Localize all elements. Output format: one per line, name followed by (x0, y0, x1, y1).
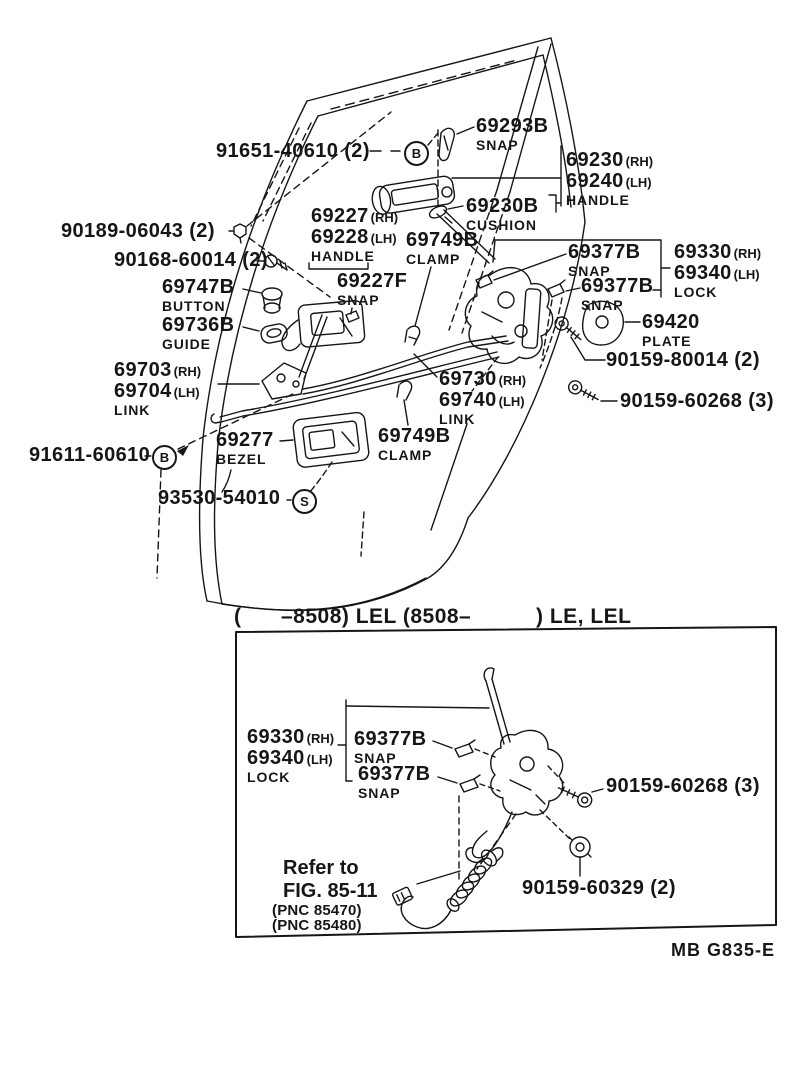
label-69740: 69740(LH)LINK (439, 390, 525, 426)
inset-label-69340: 69340(LH)LOCK (247, 748, 333, 784)
label-69703: 69703(RH) (114, 360, 201, 380)
part-side: (LH) (307, 752, 333, 767)
inset-label-69377b-2: 69377BSNAP (358, 764, 430, 800)
part-caption: SNAP (337, 293, 407, 307)
label-69230b: 69230BCUSHION (466, 196, 538, 232)
inset-label-69377b-1: 69377BSNAP (354, 729, 426, 765)
label-69240: 69240(LH)HANDLE (566, 171, 652, 207)
inset-header-range: –8508) LEL (8508– (281, 606, 471, 627)
part-number: 69340 (247, 747, 305, 769)
part-number: 69230B (466, 195, 538, 217)
inset-label-90159-60329: 90159-60329 (2) (522, 878, 676, 898)
part-side: (RH) (174, 364, 201, 379)
label-69747b: 69747BBUTTON (162, 277, 234, 313)
label-69377b-1: 69377BSNAP (568, 242, 640, 278)
label-90159-80014: 90159-80014 (2) (606, 350, 760, 370)
label-69227: 69227(RH) (311, 206, 398, 226)
label-69230: 69230(RH) (566, 150, 653, 170)
part-number: 90159-60329 (2) (522, 877, 676, 899)
part-side: (RH) (371, 210, 398, 225)
part-caption: SNAP (358, 786, 430, 800)
label-69227f: 69227FSNAP (337, 271, 407, 307)
part-number: 69730 (439, 368, 497, 390)
part-number: 69377B (568, 241, 640, 263)
label-69730: 69730(RH) (439, 369, 526, 389)
label-69736b: 69736BGUIDE (162, 315, 234, 351)
label-69340: 69340(LH)LOCK (674, 263, 760, 299)
part-number: 69749B (406, 229, 478, 251)
refer-note-pnc2: (PNC 85480) (272, 918, 362, 933)
part-caption: HANDLE (311, 249, 397, 263)
refer-note-line1: Refer to (283, 858, 359, 878)
part-caption: SNAP (581, 298, 653, 312)
label-69749b-top: 69749BCLAMP (406, 230, 478, 266)
part-caption: PLATE (642, 334, 700, 348)
inset-label-90159-60268: 90159-60268 (3) (606, 776, 760, 796)
part-number: 90159-80014 (2) (606, 349, 760, 371)
label-69749b-bottom: 69749BCLAMP (378, 426, 450, 462)
part-number: 90189-06043 (2) (61, 220, 215, 242)
part-caption: BUTTON (162, 299, 234, 313)
part-caption: BEZEL (216, 452, 274, 466)
part-number: 90159-60268 (3) (606, 775, 760, 797)
label-93530-54010: 93530-54010 (158, 488, 280, 508)
part-caption: HANDLE (566, 193, 652, 207)
inset-header-grades: ) LE, LEL (536, 606, 632, 627)
part-number: 69240 (566, 170, 624, 192)
part-caption: LOCK (247, 770, 333, 784)
label-69330: 69330(RH) (674, 242, 761, 262)
part-number: 69227F (337, 270, 407, 292)
part-number: 69747B (162, 276, 234, 298)
part-number: 69227 (311, 205, 369, 227)
refer-note-pnc1: (PNC 85470) (272, 903, 362, 918)
part-number: 69377B (358, 763, 430, 785)
part-side: (RH) (734, 246, 761, 261)
label-69377b-2: 69377BSNAP (581, 276, 653, 312)
part-number: 69704 (114, 380, 172, 402)
part-number: 69740 (439, 389, 497, 411)
part-side: (RH) (626, 154, 653, 169)
label-90168-60014: 90168-60014 (2) (114, 250, 268, 270)
circled-s-symbol: S (292, 489, 317, 514)
label-91611-60610: 91611-60610 (29, 445, 150, 465)
part-number: 69340 (674, 262, 732, 284)
part-number: 69330 (674, 241, 732, 263)
figure-code: MB G835-E (671, 941, 775, 959)
part-side: (LH) (734, 267, 760, 282)
label-69293b: 69293BSNAP (476, 116, 548, 152)
part-number: 91611-60610 (29, 444, 150, 466)
part-caption: CLAMP (378, 448, 450, 462)
circled-b-symbol-left: B (152, 445, 177, 470)
part-side: (LH) (499, 394, 525, 409)
part-caption: LINK (439, 412, 525, 426)
inset-label-69330: 69330(RH) (247, 727, 334, 747)
part-side: (RH) (499, 373, 526, 388)
part-number: 93530-54010 (158, 487, 280, 509)
refer-note-line2: FIG. 85-11 (283, 881, 378, 901)
part-number: 69330 (247, 726, 305, 748)
part-number: 69228 (311, 226, 369, 248)
label-90159-60268-upper: 90159-60268 (3) (620, 391, 774, 411)
diagram-linework (0, 0, 792, 1066)
part-caption: LINK (114, 403, 200, 417)
part-caption: CLAMP (406, 252, 478, 266)
part-side: (RH) (307, 731, 334, 746)
label-69228: 69228(LH)HANDLE (311, 227, 397, 263)
part-number: 69736B (162, 314, 234, 336)
part-side: (LH) (626, 175, 652, 190)
part-number: 69703 (114, 359, 172, 381)
label-91651-40610: 91651-40610 (2) (216, 141, 370, 161)
label-69704: 69704(LH)LINK (114, 381, 200, 417)
label-90189-06043: 90189-06043 (2) (61, 221, 215, 241)
part-number: 69749B (378, 425, 450, 447)
part-number: 90159-60268 (3) (620, 390, 774, 412)
part-number: 69277 (216, 429, 274, 451)
part-number: 69230 (566, 149, 624, 171)
label-69420: 69420PLATE (642, 312, 700, 348)
part-number: 69293B (476, 115, 548, 137)
label-69277: 69277BEZEL (216, 430, 274, 466)
parts-catalog-page: 91651-40610 (2) 69293BSNAP 69230(RH) 692… (0, 0, 792, 1066)
part-caption: GUIDE (162, 337, 234, 351)
part-caption: SNAP (476, 138, 548, 152)
part-number: 69420 (642, 311, 700, 333)
inset-header-open-paren: ( (234, 606, 242, 627)
bezel-drawing (145, 392, 370, 578)
circled-b-symbol-top: B (404, 141, 429, 166)
part-number: 69377B (581, 275, 653, 297)
part-number: 91651-40610 (2) (216, 140, 370, 162)
part-number: 69377B (354, 728, 426, 750)
part-side: (LH) (174, 385, 200, 400)
part-number: 90168-60014 (2) (114, 249, 268, 271)
part-side: (LH) (371, 231, 397, 246)
part-caption: LOCK (674, 285, 760, 299)
